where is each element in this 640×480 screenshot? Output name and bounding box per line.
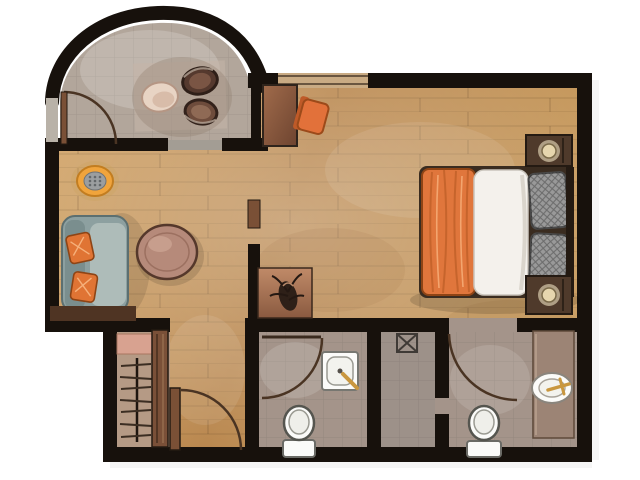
coffee-table-highlight — [148, 236, 172, 252]
floor-stool — [77, 166, 113, 196]
bathroom2-opening-floor — [435, 398, 449, 414]
coffee-table — [137, 225, 197, 279]
sofa-pillow-1 — [65, 232, 94, 264]
toilet-2 — [467, 406, 501, 457]
toilet-2-seat — [474, 410, 494, 434]
oval-sink — [532, 373, 572, 403]
shower-right-wall-lower — [435, 414, 449, 447]
nook-bottom-wall-right — [222, 138, 268, 151]
console-table — [258, 268, 312, 318]
sofa — [62, 216, 128, 312]
bed-bath-divider-wall-left — [245, 318, 449, 332]
bathroom1-right-wall — [367, 332, 381, 447]
toilet-2-tank — [467, 441, 501, 457]
toilet-1 — [283, 406, 315, 457]
right-wall — [577, 73, 592, 462]
top-wall-right — [368, 73, 592, 88]
entry-door-leaf — [170, 388, 180, 450]
floor-plan-svg — [0, 0, 640, 480]
shower-tiles — [381, 331, 435, 447]
desk — [263, 85, 297, 146]
bed-pillow-1-hatch — [528, 172, 569, 229]
shower-right-wall-upper — [435, 332, 449, 398]
bathroom2-wash — [450, 345, 530, 415]
floor-plan-image — [0, 0, 640, 480]
nightstand-bottom-lamp — [542, 288, 556, 302]
closet-left-wall — [103, 320, 117, 447]
nightstand-top-lamp — [542, 144, 556, 158]
floor-stool-dots — [89, 176, 102, 187]
nightstand-bottom — [526, 276, 572, 314]
dining-nook-furniture — [132, 57, 232, 137]
nightstand-top — [526, 135, 572, 166]
nook-door-sill — [46, 98, 58, 142]
nook-right-wall — [251, 82, 261, 140]
exterior-shadow-right — [592, 80, 599, 460]
mid-column-wood-cap — [248, 200, 260, 228]
bathroom2-door-gap-floor — [449, 318, 517, 332]
bed-pillow-1 — [528, 172, 569, 229]
left-wall — [45, 138, 59, 332]
nook-threshold — [168, 140, 222, 150]
wardrobe-shelf — [117, 334, 153, 354]
exterior-shadow-bottom — [110, 462, 592, 468]
nook-door-leaf — [61, 92, 67, 144]
toilet-1-seat — [289, 410, 309, 434]
toilet-1-tank — [283, 440, 315, 457]
bed-bath-divider-wall-right — [517, 318, 577, 332]
sofa-pillow-2 — [70, 271, 98, 302]
wardrobe-sliding-panel — [152, 330, 168, 447]
living-wall-bench — [50, 306, 136, 321]
bed-duvet — [474, 170, 528, 295]
bathroom1-left-wall — [245, 332, 259, 447]
square-sink — [322, 352, 358, 390]
